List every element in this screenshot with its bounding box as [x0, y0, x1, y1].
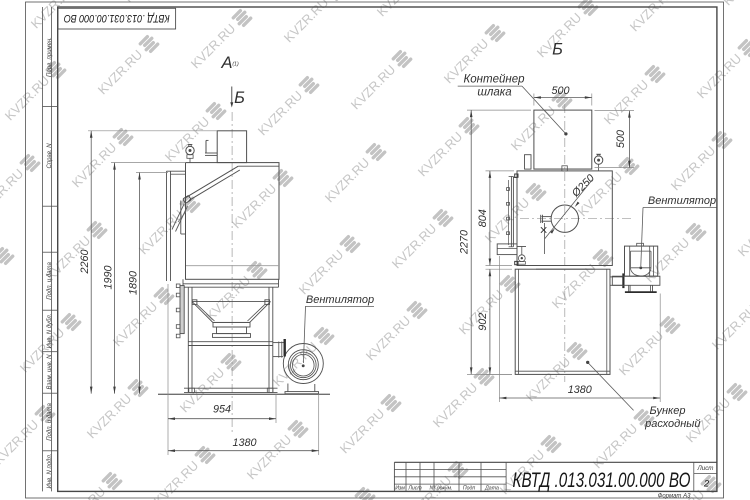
svg-text:2260: 2260 — [79, 249, 91, 274]
svg-text:Вентилятор: Вентилятор — [648, 195, 716, 207]
svg-text:(1): (1) — [232, 62, 239, 68]
svg-text:Подп. и дата: Подп. и дата — [47, 403, 53, 441]
svg-text:Инв. N дубл.: Инв. N дубл. — [47, 314, 53, 349]
svg-text:500: 500 — [615, 130, 627, 148]
svg-text:N° докум.: N° докум. — [429, 486, 452, 492]
svg-text:Изм: Изм — [395, 486, 405, 492]
svg-text:804: 804 — [477, 209, 489, 227]
svg-text:Дата: Дата — [484, 486, 499, 492]
svg-text:шлака: шлака — [477, 86, 511, 98]
svg-text:2: 2 — [703, 479, 710, 490]
svg-text:КВТД .013.031.00.000 ВО: КВТД .013.031.00.000 ВО — [64, 12, 170, 24]
svg-text:Контейнер: Контейнер — [464, 74, 526, 86]
svg-text:Формат А3: Формат А3 — [658, 493, 691, 499]
svg-text:А: А — [220, 54, 232, 72]
svg-text:Перв. примен.: Перв. примен. — [47, 37, 53, 77]
svg-text:1890: 1890 — [127, 271, 139, 295]
svg-text:Лист: Лист — [697, 465, 714, 472]
svg-text:Справ. N: Справ. N — [47, 143, 53, 169]
svg-text:Подп: Подп — [463, 486, 476, 492]
svg-text:Инв. N подл.: Инв. N подл. — [47, 453, 53, 488]
svg-text:1990: 1990 — [102, 265, 114, 289]
svg-text:расходный: расходный — [644, 418, 700, 430]
svg-text:1380: 1380 — [232, 437, 256, 449]
svg-text:954: 954 — [213, 404, 231, 416]
svg-text:2270: 2270 — [459, 230, 471, 255]
svg-text:Подп. и дата: Подп. и дата — [47, 262, 53, 300]
svg-text:Лист: Лист — [407, 486, 422, 492]
svg-text:Бункер: Бункер — [650, 405, 686, 417]
svg-text:КВТД .013.031.00.000 ВО: КВТД .013.031.00.000 ВО — [513, 468, 691, 492]
svg-text:902: 902 — [477, 313, 489, 331]
svg-text:Взам. инв. N: Взам. инв. N — [47, 354, 53, 390]
svg-text:Б: Б — [552, 41, 563, 59]
svg-text:Б: Б — [234, 89, 245, 107]
svg-text:Вентилятор: Вентилятор — [306, 294, 374, 306]
svg-text:1380: 1380 — [568, 384, 592, 396]
svg-text:500: 500 — [551, 85, 569, 97]
